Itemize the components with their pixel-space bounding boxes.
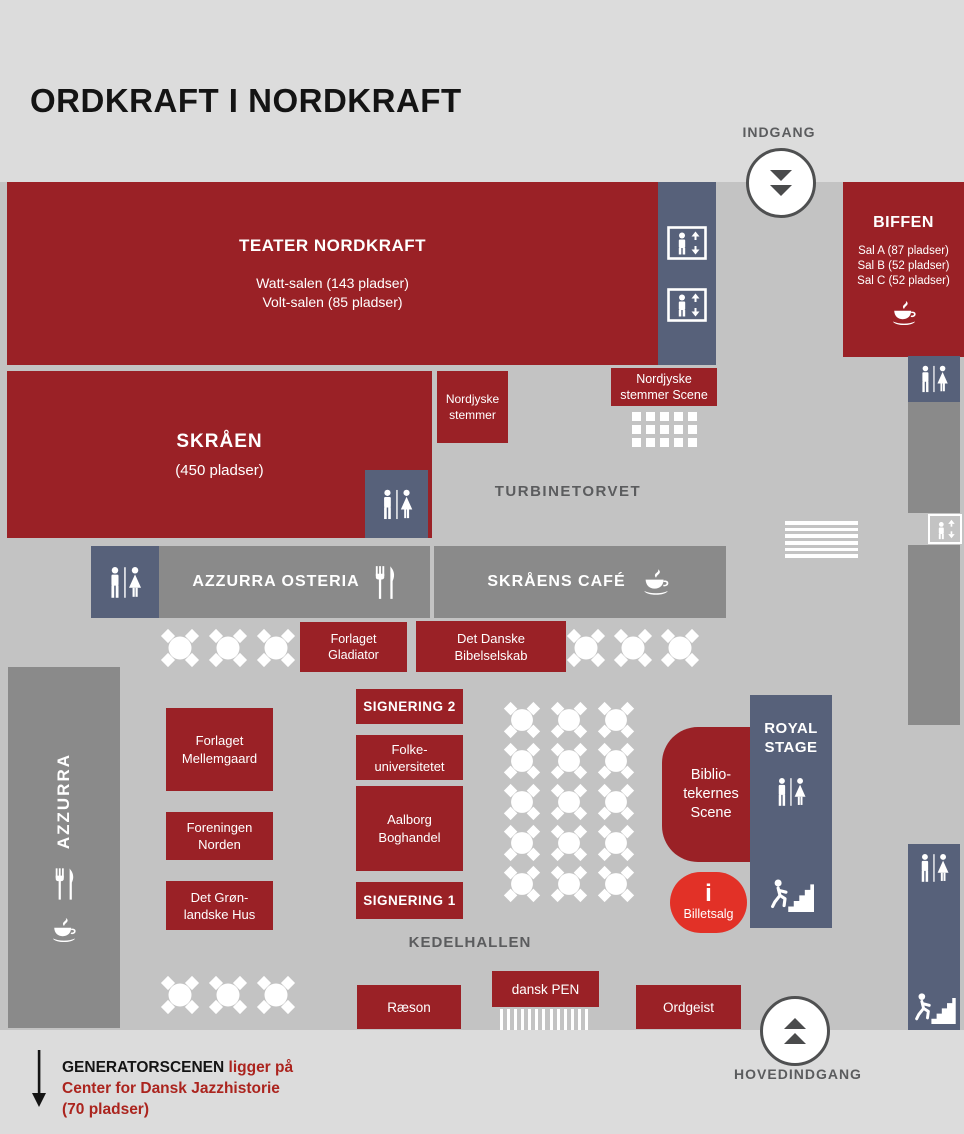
room-name: SKRÅENS CAFÉ — [487, 573, 625, 591]
stripe — [528, 1009, 531, 1030]
room-name: AZZURRA — [54, 753, 74, 849]
table-icon — [208, 975, 248, 1015]
stripe — [542, 1009, 545, 1030]
seat-square — [674, 425, 683, 434]
entrance-label-indgang: INDGANG — [699, 124, 859, 140]
area-label-turbinetorvet: TURBINETORVET — [468, 483, 668, 500]
entrance-label-hovedindgang: HOVEDINDGANG — [713, 1066, 883, 1082]
stripe — [785, 521, 858, 525]
stand-aalborg-boghandel: Aalborg Boghandel — [356, 786, 463, 871]
footnote: GENERATORSCENEN ligger på Center for Dan… — [62, 1057, 293, 1120]
stripe — [571, 1009, 574, 1030]
stripe — [585, 1009, 588, 1030]
wall-segment — [908, 402, 960, 513]
stand-forlaget-gladiator: Forlaget Gladiator — [300, 622, 407, 672]
stripe — [785, 528, 858, 532]
stripe — [564, 1009, 567, 1030]
stairs-icon — [912, 991, 956, 1024]
table-icon — [503, 824, 541, 862]
stage-nordjyske-stemmer-scene: Nordjyske stemmer Scene — [611, 368, 717, 406]
fork-knife-icon — [373, 565, 397, 600]
entrance-hovedindgang-icon — [760, 996, 830, 1066]
room-royal-stage: ROYAL STAGE — [750, 695, 832, 928]
tables-row — [566, 628, 700, 668]
table-icon — [597, 824, 635, 862]
footnote-venue: GENERATORSCENEN — [62, 1059, 224, 1076]
stripe — [535, 1009, 538, 1030]
table-icon — [597, 783, 635, 821]
elevator-icon — [667, 288, 707, 322]
toilet-stairs-block — [908, 844, 960, 1030]
stand-folkeuniversitetet: Folke- universitetet — [356, 735, 463, 780]
table-icon — [566, 628, 606, 668]
elevator-shaft — [658, 182, 716, 365]
stand-forlaget-mellemgaard: Forlaget Mellemgaard — [166, 708, 273, 791]
stage-bibliotekernes-scene: Biblio- tekernes Scene — [662, 727, 760, 862]
table-icon — [256, 975, 296, 1015]
seat-square — [674, 438, 683, 447]
toilet-block — [91, 546, 159, 618]
room-name: ROYAL STAGE — [764, 719, 818, 757]
seat-square — [674, 412, 683, 421]
elevator-icon — [931, 517, 959, 541]
ticket-office-label: Billetsalg — [683, 907, 733, 921]
stairs-stripes — [785, 521, 858, 558]
stand-det-groenlandske-hus: Det Grøn- landske Hus — [166, 881, 273, 930]
stand-signering-1: SIGNERING 1 — [356, 882, 463, 919]
toilet-icon — [916, 365, 952, 393]
room-skraaens-cafe: SKRÅENS CAFÉ — [434, 546, 726, 618]
coffee-icon — [48, 918, 80, 942]
room-capacity: (450 pladser) — [175, 462, 263, 479]
stand-signering-2: SIGNERING 2 — [356, 689, 463, 724]
room-name: SKRÅEN — [176, 431, 262, 453]
table-icon — [208, 628, 248, 668]
arrow-up-icon — [784, 1018, 806, 1029]
wall-segment — [908, 545, 960, 725]
table-icon — [550, 783, 588, 821]
stand-raeson: Ræson — [357, 985, 461, 1029]
room-nordjyske-stemmer: Nordjyske stemmer — [437, 371, 508, 443]
arrow-down-icon — [770, 185, 792, 196]
room-azzurra: AZZURRA — [8, 667, 120, 1028]
table-icon — [160, 975, 200, 1015]
floor-plan: ORDKRAFT I NORDKRAFT TEATER NORDKRAFT Wa… — [0, 0, 964, 1134]
table-icon — [597, 742, 635, 780]
seat-square — [646, 412, 655, 421]
stripe — [785, 548, 858, 552]
stand-foreningen-norden: Foreningen Norden — [166, 812, 273, 860]
tables-row — [160, 628, 296, 668]
ticket-office: i Billetsalg — [670, 872, 747, 933]
table-icon — [503, 742, 541, 780]
room-details: Sal A (87 pladser) Sal B (52 pladser) Sa… — [857, 244, 950, 289]
table-icon — [660, 628, 700, 668]
seat-square — [688, 438, 697, 447]
room-azzurra-osteria: AZZURRA OSTERIA — [159, 546, 430, 618]
stairs-icon — [768, 877, 814, 912]
stripe — [785, 541, 858, 545]
tables-grid — [503, 701, 635, 903]
table-icon — [550, 824, 588, 862]
seating-squares — [632, 412, 697, 447]
entrance-stripes — [500, 1009, 588, 1030]
table-icon — [160, 628, 200, 668]
table-icon — [550, 865, 588, 903]
coffee-icon — [639, 569, 673, 595]
tables-row — [160, 975, 296, 1015]
toilet-icon — [772, 777, 810, 807]
stand-det-danske-bibelselskab: Det Danske Bibelselskab — [416, 621, 566, 672]
coffee-icon — [888, 301, 920, 325]
table-icon — [597, 701, 635, 739]
room-name: AZZURRA OSTERIA — [192, 573, 359, 591]
down-arrow-icon — [30, 1050, 48, 1113]
elevator-box — [928, 514, 962, 544]
seat-square — [646, 438, 655, 447]
table-icon — [597, 865, 635, 903]
room-teater-nordkraft: TEATER NORDKRAFT Watt-salen (143 pladser… — [7, 182, 658, 365]
table-icon — [256, 628, 296, 668]
footnote-text: ligger på — [229, 1059, 294, 1076]
seat-square — [632, 425, 641, 434]
table-icon — [503, 865, 541, 903]
stripe — [514, 1009, 517, 1030]
area-label-kedelhallen: KEDELHALLEN — [390, 934, 550, 951]
stripe — [521, 1009, 524, 1030]
seat-square — [688, 412, 697, 421]
seat-square — [660, 425, 669, 434]
entrance-indgang-icon — [746, 148, 816, 218]
page-title: ORDKRAFT I NORDKRAFT — [30, 82, 462, 120]
toilet-icon — [915, 853, 953, 883]
stand-ordgeist: Ordgeist — [636, 985, 741, 1029]
seat-square — [646, 425, 655, 434]
table-icon — [613, 628, 653, 668]
elevator-icon — [667, 226, 707, 260]
seat-square — [632, 412, 641, 421]
stripe — [785, 534, 858, 538]
fork-knife-icon — [53, 867, 76, 901]
stripe — [578, 1009, 581, 1030]
table-icon — [550, 742, 588, 780]
footnote-line2: Center for Dansk Jazzhistorie — [62, 1078, 293, 1099]
table-icon — [550, 701, 588, 739]
toilet-block — [908, 356, 960, 402]
seat-square — [632, 438, 641, 447]
stand-dansk-pen: dansk PEN — [492, 971, 599, 1007]
footnote-line1: GENERATORSCENEN ligger på — [62, 1057, 293, 1078]
arrow-down-icon — [770, 170, 792, 181]
table-icon — [503, 701, 541, 739]
info-icon: i — [705, 884, 712, 904]
stripe — [557, 1009, 560, 1030]
table-icon — [503, 783, 541, 821]
seat-square — [688, 425, 697, 434]
toilet-icon — [377, 489, 417, 520]
arrow-up-icon — [784, 1033, 806, 1044]
footnote-line3: (70 pladser) — [62, 1099, 293, 1120]
seat-square — [660, 438, 669, 447]
room-biffen: BIFFEN Sal A (87 pladser) Sal B (52 plad… — [843, 182, 964, 357]
room-details: Watt-salen (143 pladser) Volt-salen (85 … — [256, 274, 409, 312]
toilet-icon — [104, 566, 146, 599]
room-name: TEATER NORDKRAFT — [239, 236, 426, 256]
stripe — [550, 1009, 553, 1030]
room-name: BIFFEN — [873, 214, 934, 232]
seat-square — [660, 412, 669, 421]
stripe — [507, 1009, 510, 1030]
stripe — [500, 1009, 503, 1030]
stripe — [785, 554, 858, 558]
toilet-block — [365, 470, 428, 538]
